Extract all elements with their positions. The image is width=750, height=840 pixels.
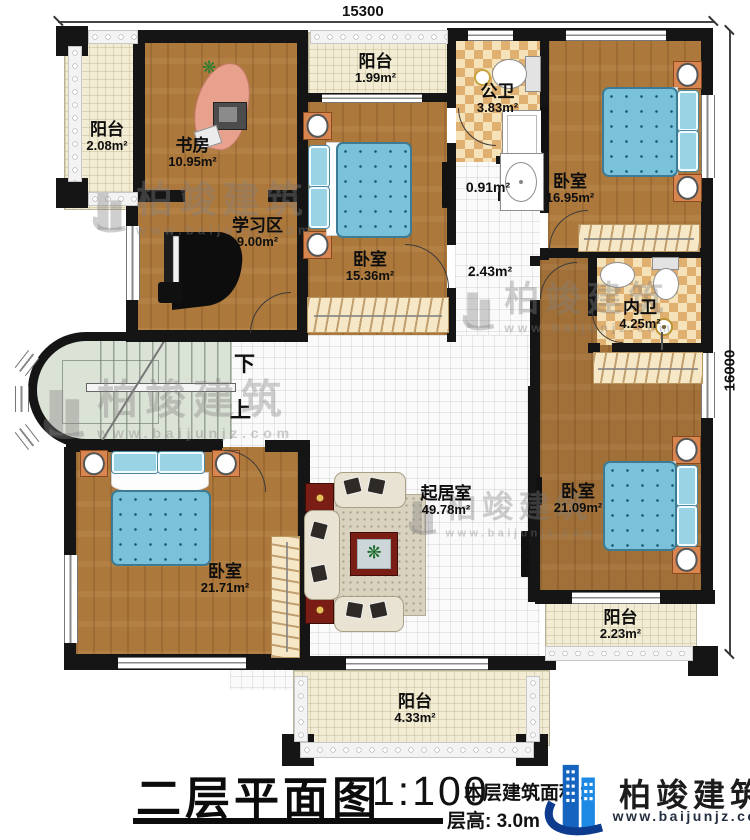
nightstand (673, 61, 702, 89)
floor-plan: 下 上 (0, 0, 750, 840)
window (64, 555, 78, 643)
floor-height-note: 层高: 3.0m (447, 806, 540, 833)
stairs-up-label: 上 (230, 394, 251, 424)
pillow (309, 187, 329, 228)
stair-bay-window (15, 424, 40, 450)
balcony-railing (545, 646, 693, 661)
window (118, 657, 246, 669)
wall (701, 28, 713, 95)
wall (530, 300, 540, 386)
pillow (112, 452, 158, 473)
wall (133, 190, 185, 202)
pillow (678, 91, 698, 131)
wall (530, 256, 540, 266)
company-website: www.baijunjz.com (613, 808, 750, 824)
sofa-cushion (309, 564, 328, 584)
stairs-down-label: 下 (234, 348, 255, 378)
balcony-railing (526, 676, 540, 742)
coffee-table: ❋ (350, 532, 398, 576)
balcony-railing (294, 676, 308, 742)
nightstand (303, 112, 332, 140)
lamp-symbol (655, 318, 673, 336)
wall (133, 30, 145, 192)
closet (307, 297, 449, 333)
closet (593, 352, 703, 384)
pillow (678, 131, 698, 171)
wall (64, 447, 76, 555)
sofa-cushion (367, 476, 387, 495)
plant: ❋ (366, 542, 381, 563)
toilet (653, 268, 679, 300)
window (701, 95, 715, 178)
toilet-tank (525, 56, 541, 92)
toilet (492, 59, 527, 89)
tv (521, 531, 529, 577)
wall (588, 258, 597, 316)
bed (336, 142, 412, 238)
stair-handrail (86, 383, 236, 392)
grand-piano (162, 228, 250, 318)
nightstand (672, 546, 701, 574)
wall (701, 418, 713, 604)
company-logo-icon (532, 756, 622, 840)
window (701, 352, 715, 418)
wardrobe (271, 536, 300, 658)
pillow (158, 452, 204, 473)
dimension-line-top (58, 21, 714, 23)
balcony-railing (300, 742, 534, 758)
computer-monitor (213, 102, 247, 130)
end-table (305, 483, 334, 512)
closet (578, 224, 700, 252)
wall (133, 30, 308, 43)
bed (111, 490, 211, 566)
sink (505, 162, 537, 202)
floor-drain (474, 69, 491, 86)
sofa-cushion (345, 601, 365, 620)
tv (536, 477, 542, 505)
wall (297, 30, 308, 342)
window (322, 94, 422, 103)
balcony-railing (88, 30, 138, 44)
stair-bay-window (15, 386, 29, 412)
sink (600, 262, 635, 288)
bed (603, 461, 677, 551)
tv (541, 107, 548, 152)
window (566, 30, 666, 41)
piano-bench (158, 282, 183, 303)
nightstand (672, 436, 701, 464)
pillow (677, 466, 697, 506)
balcony-railing (88, 192, 138, 206)
tv (442, 162, 449, 208)
balcony-railing (68, 46, 82, 182)
balcony-railing (310, 30, 448, 44)
dimension-top-value: 15300 (342, 3, 384, 20)
pillow (309, 146, 329, 187)
bed (602, 87, 678, 177)
lamp-stem (661, 332, 663, 350)
column (56, 178, 88, 208)
window (468, 30, 513, 41)
window (572, 592, 660, 604)
nightstand (80, 450, 108, 477)
window (126, 226, 140, 300)
room-balcony-bottom-floor (293, 670, 550, 746)
pillow (677, 506, 697, 546)
dimension-right-value: 16000 (722, 341, 739, 401)
wall (701, 178, 713, 352)
plant: ❋ (202, 58, 216, 78)
window (346, 658, 488, 670)
nightstand (673, 174, 702, 202)
title-underline (133, 818, 443, 824)
